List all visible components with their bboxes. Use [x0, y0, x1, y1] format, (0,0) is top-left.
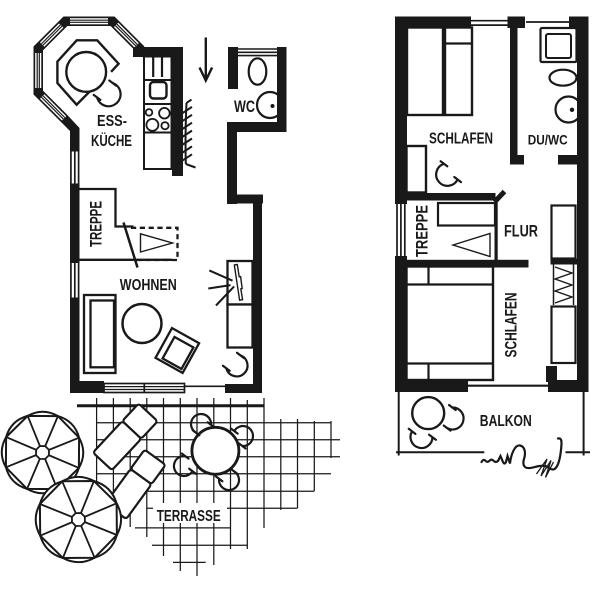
svg-text:TREPPE: TREPPE — [413, 205, 432, 257]
svg-text:WOHNEN: WOHNEN — [120, 277, 177, 294]
svg-text:ESS-: ESS- — [97, 113, 127, 130]
svg-text:SCHLAFEN: SCHLAFEN — [502, 293, 521, 358]
svg-text:BALKON: BALKON — [480, 413, 532, 430]
svg-text:TERRASSE: TERRASSE — [157, 508, 221, 525]
svg-text:FLUR: FLUR — [504, 222, 538, 241]
svg-text:WC: WC — [234, 97, 255, 116]
svg-text:KÜCHE: KÜCHE — [91, 133, 132, 150]
svg-text:SCHLAFEN: SCHLAFEN — [429, 131, 493, 148]
svg-text:TREPPE: TREPPE — [87, 201, 106, 247]
svg-text:DU/WC: DU/WC — [528, 133, 568, 148]
